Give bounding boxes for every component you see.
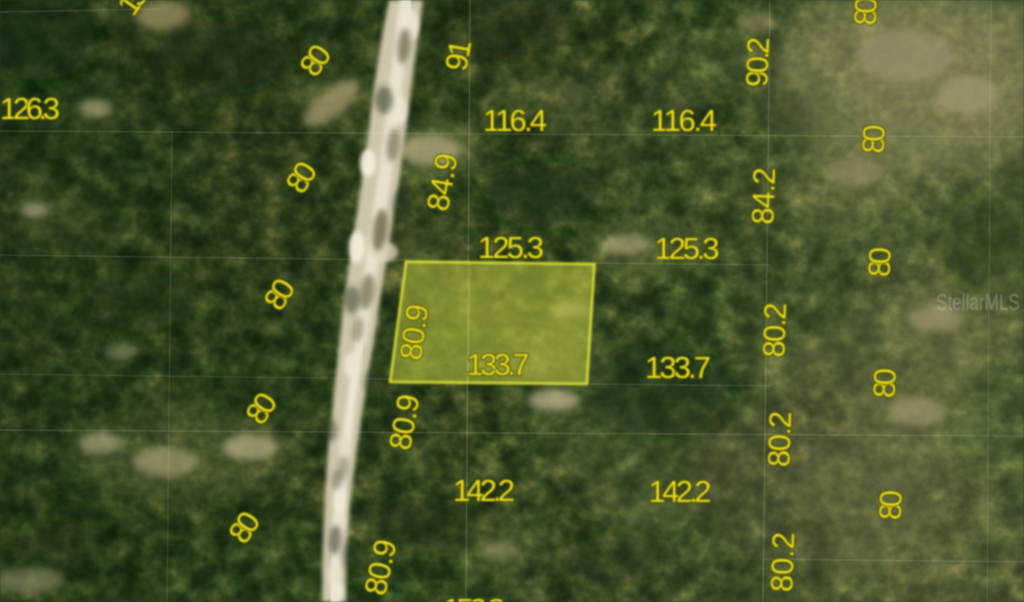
svg-text:80.2: 80.2 [761,410,798,467]
svg-text:80.2: 80.2 [756,302,793,358]
svg-text:152.2: 152.2 [443,592,505,602]
svg-text:80: 80 [856,124,892,154]
svg-text:133.7: 133.7 [645,350,711,385]
svg-text:126.3: 126.3 [0,91,60,126]
svg-text:133.7: 133.7 [467,347,530,382]
svg-text:91: 91 [438,37,478,74]
svg-text:125.3: 125.3 [655,231,720,266]
svg-text:80: 80 [862,246,898,277]
svg-text:80.2: 80.2 [764,531,801,592]
svg-text:90.2: 90.2 [739,36,776,87]
svg-text:84.2: 84.2 [745,167,782,225]
svg-text:116.4: 116.4 [483,103,547,138]
svg-text:80: 80 [848,0,884,26]
svg-text:142.2: 142.2 [649,474,712,509]
svg-text:StellarMLS: StellarMLS [936,289,1020,315]
svg-text:116.4: 116.4 [651,103,717,138]
svg-text:80: 80 [873,489,909,520]
svg-text:80: 80 [867,367,903,398]
svg-text:142.2: 142.2 [453,473,515,508]
svg-text:125.3: 125.3 [478,230,544,265]
